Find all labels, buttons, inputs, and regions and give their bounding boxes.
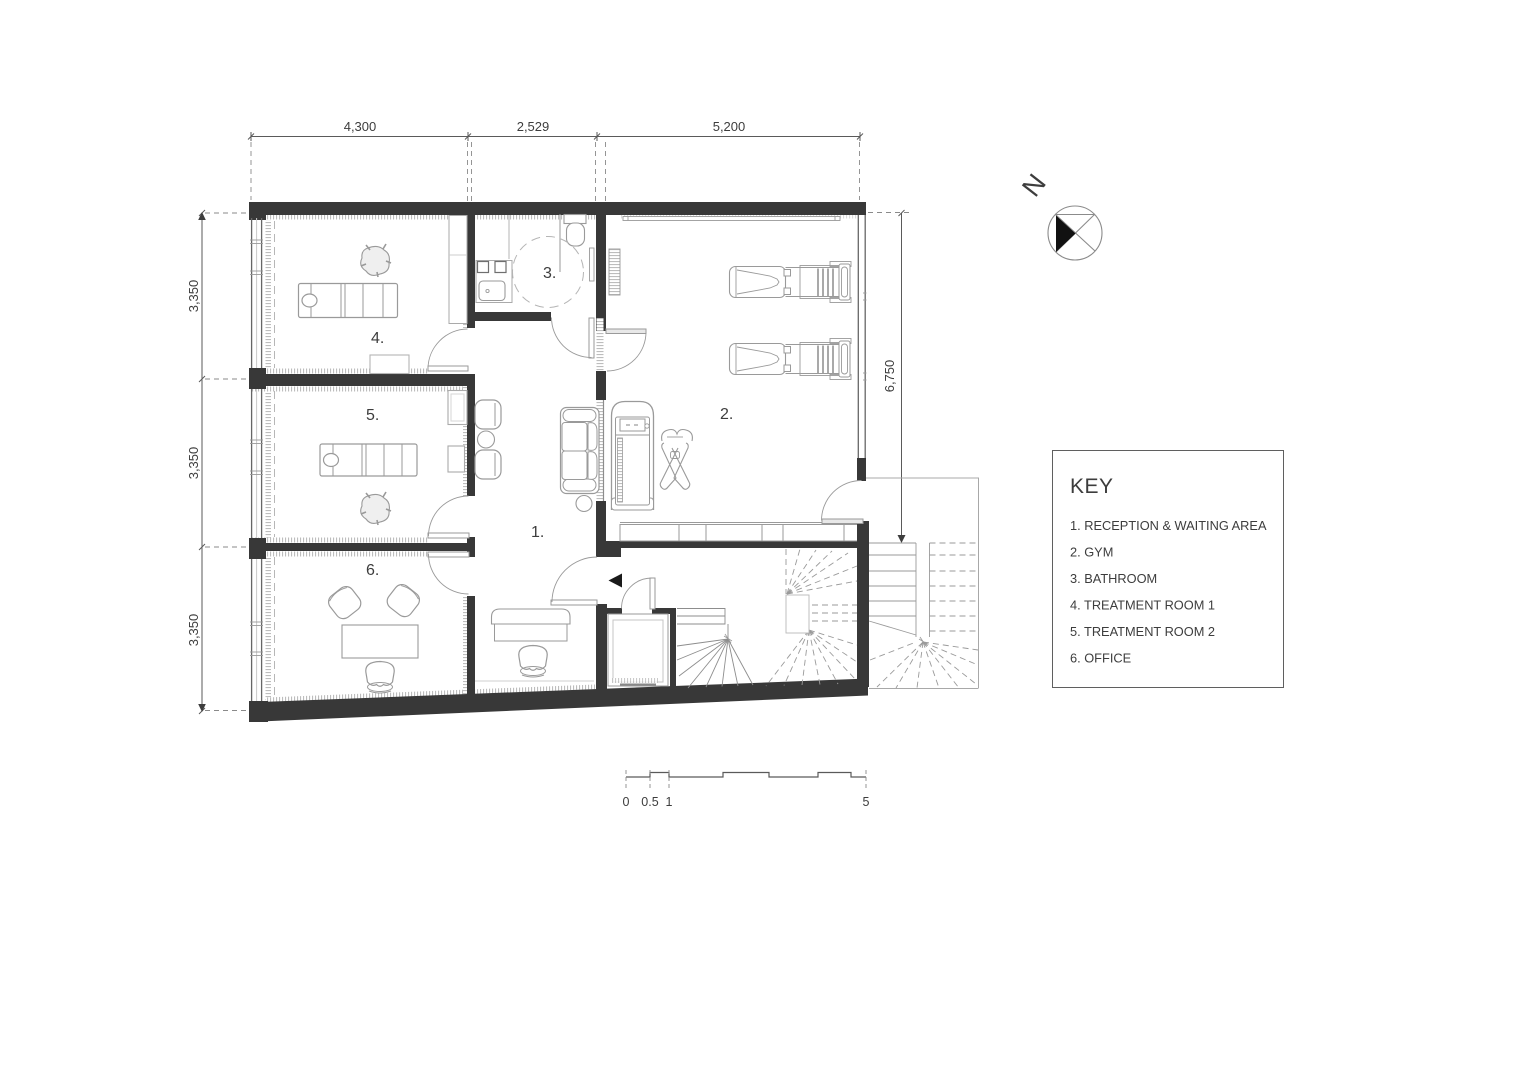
svg-text:2,529: 2,529 bbox=[517, 119, 550, 134]
svg-text:1. RECEPTION & WAITING AREA: 1. RECEPTION & WAITING AREA bbox=[1070, 518, 1267, 533]
svg-text:4.: 4. bbox=[371, 330, 384, 347]
svg-text:4,300: 4,300 bbox=[344, 119, 377, 134]
svg-text:1.: 1. bbox=[531, 524, 544, 541]
svg-text:0.5: 0.5 bbox=[641, 795, 658, 809]
svg-text:6.: 6. bbox=[366, 562, 379, 579]
svg-text:KEY: KEY bbox=[1070, 475, 1114, 498]
svg-text:3,350: 3,350 bbox=[186, 614, 201, 647]
svg-text:4. TREATMENT ROOM 1: 4. TREATMENT ROOM 1 bbox=[1070, 598, 1215, 613]
svg-text:3. BATHROOM: 3. BATHROOM bbox=[1070, 571, 1157, 586]
svg-text:5.: 5. bbox=[366, 407, 379, 424]
svg-text:2. GYM: 2. GYM bbox=[1070, 545, 1113, 560]
svg-text:6. OFFICE: 6. OFFICE bbox=[1070, 651, 1131, 666]
svg-text:3,350: 3,350 bbox=[186, 447, 201, 480]
svg-text:5: 5 bbox=[863, 795, 870, 809]
svg-text:0: 0 bbox=[623, 795, 630, 809]
svg-text:5,200: 5,200 bbox=[713, 119, 746, 134]
svg-text:2.: 2. bbox=[720, 406, 733, 423]
svg-text:3,350: 3,350 bbox=[186, 280, 201, 313]
svg-text:6,750: 6,750 bbox=[882, 360, 897, 393]
svg-text:5. TREATMENT ROOM 2: 5. TREATMENT ROOM 2 bbox=[1070, 624, 1215, 639]
svg-text:1: 1 bbox=[666, 795, 673, 809]
svg-text:3.: 3. bbox=[543, 265, 556, 282]
